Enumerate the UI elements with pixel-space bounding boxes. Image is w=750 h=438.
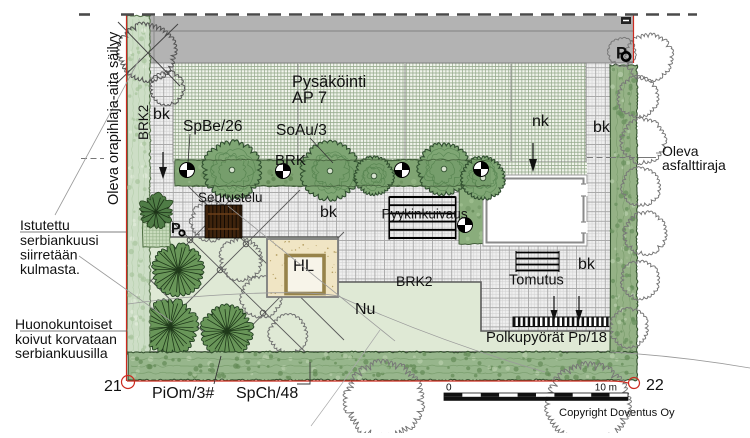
svg-text:0: 0 — [446, 383, 452, 394]
svg-text:Tomutus: Tomutus — [509, 273, 564, 289]
svg-text:bk: bk — [153, 106, 171, 123]
svg-text:bk: bk — [578, 256, 596, 273]
svg-text:Seurustelu: Seurustelu — [198, 190, 263, 205]
svg-text:Nu: Nu — [355, 301, 375, 318]
svg-text:PiOm/3#: PiOm/3# — [152, 385, 214, 402]
svg-text:kulmasta.: kulmasta. — [20, 261, 80, 277]
svg-text:Istutettu: Istutettu — [20, 217, 70, 233]
svg-text:BRK: BRK — [275, 152, 306, 169]
svg-text:bk: bk — [320, 204, 338, 221]
svg-text:BRK2: BRK2 — [136, 105, 151, 140]
svg-text:Copyright Doventus Oy: Copyright Doventus Oy — [559, 407, 675, 419]
svg-text:22: 22 — [646, 377, 664, 394]
svg-text:asfalttiraja: asfalttiraja — [662, 157, 726, 173]
svg-text:HL: HL — [293, 257, 314, 275]
svg-text:10 m: 10 m — [595, 383, 617, 394]
svg-text:SpCh/48: SpCh/48 — [236, 385, 298, 402]
svg-text:Polkupyörät Pp/18: Polkupyörät Pp/18 — [486, 330, 607, 346]
svg-text:Oleva orapihlaja-aita säilyy: Oleva orapihlaja-aita säilyy — [106, 31, 122, 205]
svg-text:21: 21 — [104, 378, 122, 395]
svg-text:SpBe/26: SpBe/26 — [183, 118, 242, 135]
svg-text:BRK2: BRK2 — [396, 273, 433, 289]
svg-text:bk: bk — [593, 119, 611, 136]
svg-text:AP 7: AP 7 — [292, 89, 327, 107]
svg-text:serbiankuusilla: serbiankuusilla — [15, 345, 108, 361]
svg-text:SoAu/3: SoAu/3 — [276, 122, 327, 139]
svg-text:nk: nk — [532, 113, 550, 130]
svg-text:Huonokuntoiset: Huonokuntoiset — [15, 316, 112, 332]
svg-text:Pyykinkuivaus: Pyykinkuivaus — [382, 207, 468, 222]
